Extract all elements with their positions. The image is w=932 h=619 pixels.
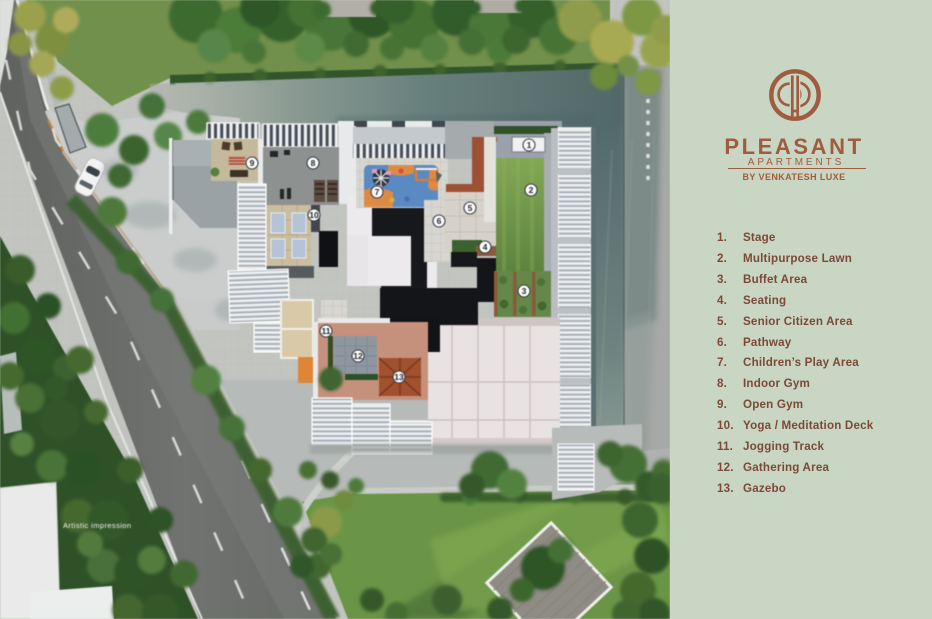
- svg-text:8: 8: [311, 158, 316, 168]
- svg-text:4: 4: [483, 242, 488, 252]
- svg-text:11: 11: [321, 326, 330, 336]
- svg-text:1: 1: [527, 140, 532, 150]
- svg-text:7: 7: [375, 187, 380, 197]
- svg-text:3: 3: [522, 286, 527, 296]
- svg-text:Artistic impression: Artistic impression: [63, 521, 131, 530]
- svg-text:5: 5: [468, 203, 473, 213]
- svg-text:9: 9: [250, 158, 255, 168]
- svg-text:6: 6: [437, 216, 442, 226]
- svg-text:12: 12: [353, 351, 363, 361]
- svg-text:13: 13: [394, 372, 404, 382]
- svg-text:2: 2: [529, 185, 534, 195]
- svg-text:10: 10: [309, 210, 319, 220]
